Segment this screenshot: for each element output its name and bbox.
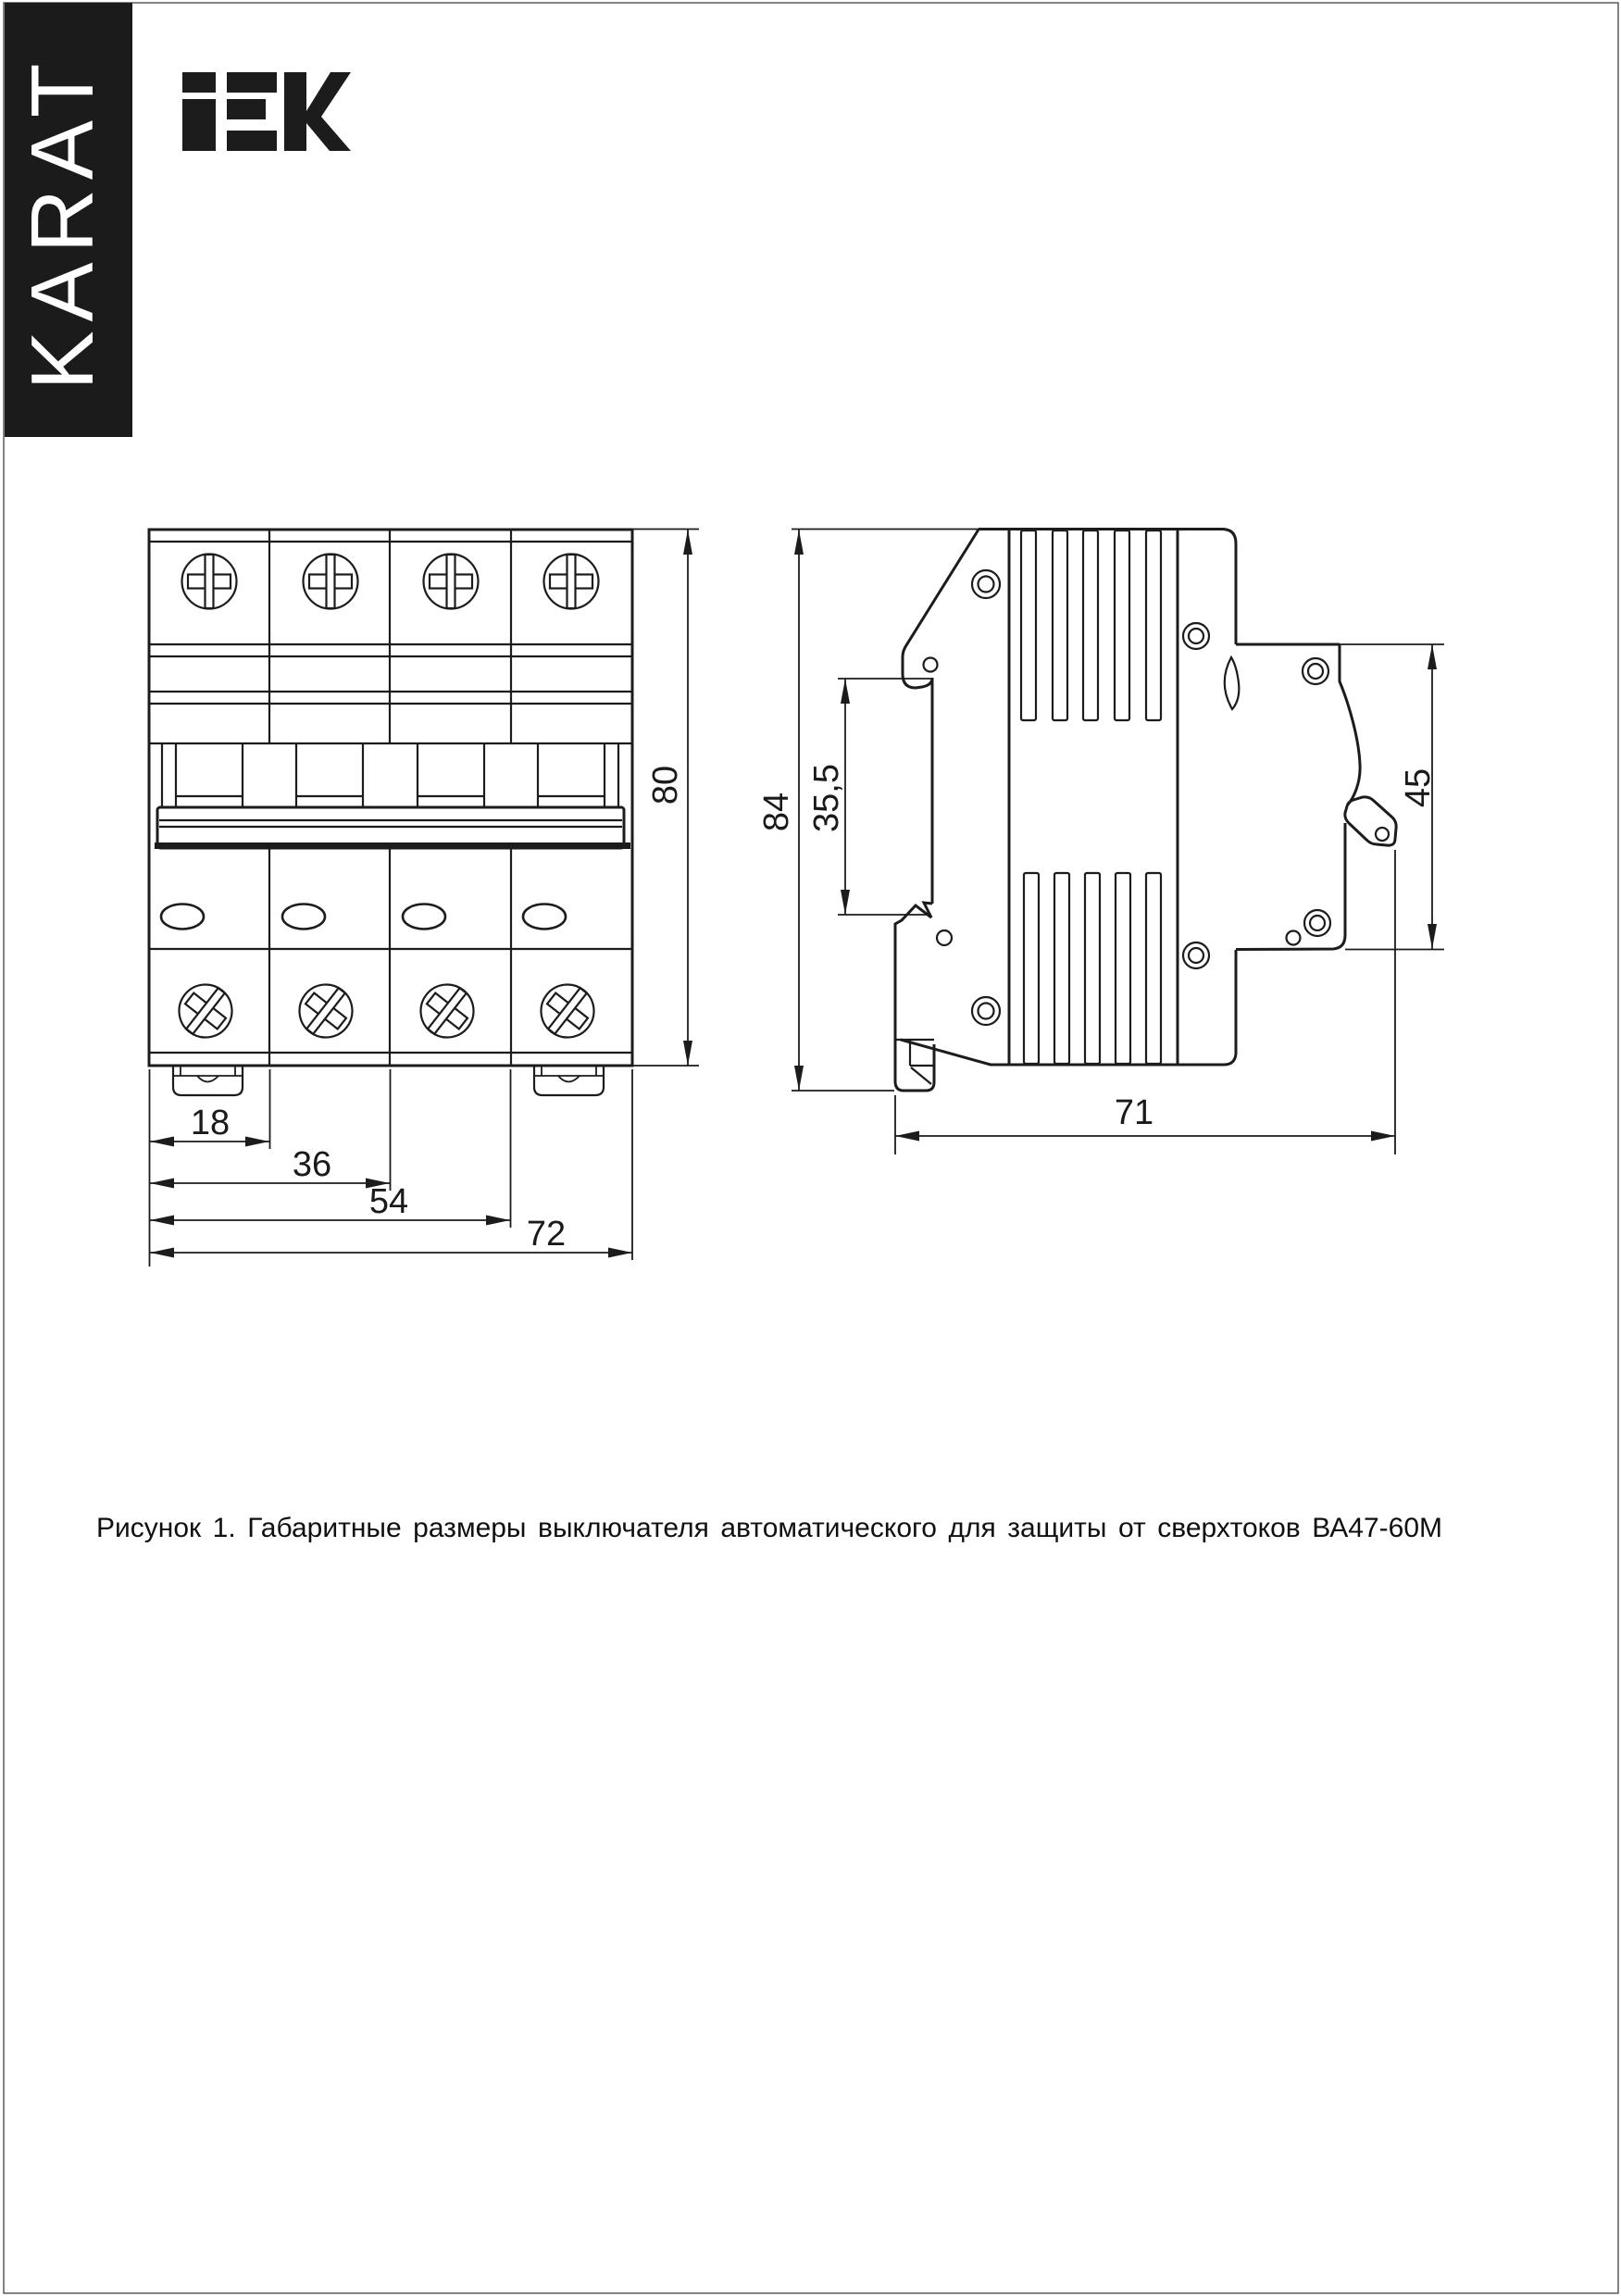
label-window xyxy=(403,905,445,930)
vent-slots-top xyxy=(1021,530,1161,720)
dimension-din-35-5: 35,5 xyxy=(807,679,932,915)
rivet-icon xyxy=(1304,910,1330,936)
iek-logo-e-bottom-bar xyxy=(227,131,277,151)
iek-logo-e-mid-bar xyxy=(227,99,266,119)
toggle-pin-hole xyxy=(1376,828,1389,841)
dim-label-35-5: 35,5 xyxy=(807,764,846,832)
rivet-icon xyxy=(1183,623,1209,649)
screw-terminal-tilted-icon xyxy=(168,974,243,1048)
toggle-slot xyxy=(418,743,484,807)
handle-tie-bar xyxy=(155,807,630,849)
dim-label-84: 84 xyxy=(757,792,796,831)
screw-terminal-tilted-icon xyxy=(530,974,605,1048)
front-face-curve xyxy=(1340,644,1360,805)
toggle-slot xyxy=(296,743,363,807)
din-latch-clip xyxy=(895,903,934,1091)
screw-terminal-icon xyxy=(182,555,237,609)
screw-terminal-icon xyxy=(304,555,358,609)
dimension-widths: 18 36 54 72 xyxy=(150,1069,633,1267)
dim-label-80: 80 xyxy=(646,766,685,805)
dim-label-72: 72 xyxy=(527,1215,566,1254)
pin-hole-icon xyxy=(924,658,938,672)
rivet-icon xyxy=(972,997,1000,1025)
pin-hole-icon xyxy=(937,930,952,945)
screw-terminal-tilted-icon xyxy=(410,974,484,1048)
front-view: 80 18 36 xyxy=(149,530,699,1267)
figure-caption: Рисунок 1. Габаритные размеры выключател… xyxy=(96,1511,1442,1546)
iek-logo-k-arms xyxy=(306,72,351,151)
top-edge xyxy=(979,530,1236,645)
dimension-36: 36 xyxy=(150,1145,390,1189)
rivet-icon xyxy=(1183,942,1209,968)
pin-hole-icon xyxy=(1287,931,1301,945)
dimension-height-80: 80 xyxy=(632,530,699,1067)
dim-label-45: 45 xyxy=(1399,768,1438,807)
toggle-slot xyxy=(176,743,243,807)
page-border xyxy=(4,3,1618,2293)
dim-label-18: 18 xyxy=(191,1104,230,1142)
dim-label-36: 36 xyxy=(293,1145,331,1184)
rivet-holes xyxy=(924,570,1331,1025)
dimension-18: 18 xyxy=(150,1104,269,1147)
iek-logo-i-dot xyxy=(182,72,216,93)
toggle-handle xyxy=(1345,797,1396,845)
label-window xyxy=(523,905,566,930)
technical-drawing: KARAT xyxy=(0,0,1621,2296)
document-page: KARAT xyxy=(0,0,1621,2296)
label-window xyxy=(282,905,325,930)
iek-logo-i-stem xyxy=(182,99,216,151)
toggle-slots xyxy=(176,743,605,807)
vent-slots-bottom xyxy=(1024,873,1161,1064)
iek-logo-e-top-bar xyxy=(227,72,277,93)
screw-terminal-icon xyxy=(544,555,599,609)
dim-label-54: 54 xyxy=(369,1182,408,1221)
din-clip xyxy=(534,1066,604,1095)
karat-banner: KARAT xyxy=(5,3,132,437)
rivet-icon xyxy=(1303,658,1328,684)
module-dividers xyxy=(269,530,511,1066)
din-hook-profile xyxy=(903,530,979,904)
label-window xyxy=(161,905,204,930)
toggle-slot xyxy=(538,743,605,807)
iek-logo-k-stem xyxy=(284,72,306,151)
dim-label-71: 71 xyxy=(1115,1093,1153,1132)
label-windows xyxy=(161,905,566,930)
iek-logo xyxy=(182,72,351,151)
dimension-54: 54 xyxy=(150,1182,510,1226)
karat-banner-label: KARAT xyxy=(13,55,112,391)
screw-terminal-icon xyxy=(424,555,479,609)
din-clip xyxy=(173,1066,243,1095)
rivet-icon xyxy=(972,570,1000,598)
dimension-front-45: 45 xyxy=(1340,644,1444,950)
side-view: 84 35,5 45 71 xyxy=(757,530,1444,1155)
screw-terminal-tilted-icon xyxy=(289,974,363,1048)
curved-slot-icon xyxy=(1225,657,1240,709)
